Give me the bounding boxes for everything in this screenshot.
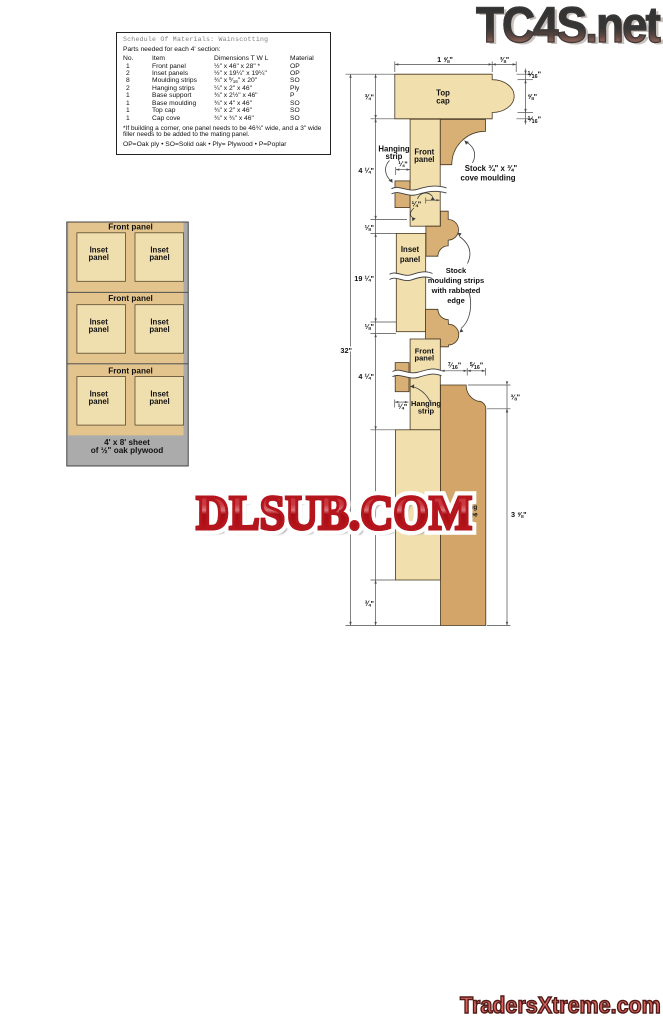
svg-text:1⁄16": 1⁄16"	[528, 70, 542, 81]
svg-text:panel: panel	[400, 255, 420, 264]
svg-text:moulding strips: moulding strips	[428, 276, 484, 285]
svg-text:Front panel: Front panel	[108, 223, 153, 232]
svg-text:panel: panel	[89, 325, 109, 334]
svg-text:strip: strip	[418, 406, 435, 415]
svg-text:¼": ¼"	[398, 402, 408, 411]
svg-text:strip: strip	[386, 152, 403, 161]
svg-text:32": 32"	[340, 346, 352, 355]
svg-text:1⁄16": 1⁄16"	[528, 115, 542, 126]
svg-text:panel: panel	[149, 325, 169, 334]
svg-text:⅜": ⅜"	[511, 393, 521, 402]
svg-text:panel: panel	[149, 397, 169, 406]
svg-text:Inset: Inset	[401, 245, 420, 254]
svg-text:¼": ¼"	[412, 200, 422, 209]
svg-text:Front panel: Front panel	[108, 366, 153, 375]
svg-text:panel: panel	[89, 253, 109, 262]
svg-text:cap: cap	[436, 96, 450, 105]
svg-text:19 ¼": 19 ¼"	[354, 274, 374, 283]
svg-text:panel: panel	[414, 155, 434, 164]
svg-text:7⁄16": 7⁄16"	[448, 360, 462, 371]
svg-text:3 ⅝": 3 ⅝"	[511, 510, 527, 519]
svg-text:panel: panel	[149, 253, 169, 262]
svg-text:of ½" oak plywood: of ½" oak plywood	[91, 446, 164, 455]
svg-text:cove moulding: cove moulding	[460, 173, 515, 182]
svg-text:⅝": ⅝"	[528, 92, 538, 101]
svg-text:¾": ¾"	[364, 599, 374, 608]
svg-text:¾": ¾"	[364, 93, 374, 102]
svg-text:with rabbeted: with rabbeted	[431, 286, 481, 295]
svg-text:4 ¼": 4 ¼"	[358, 166, 374, 175]
svg-text:edge: edge	[447, 296, 465, 305]
svg-text:4 ¼": 4 ¼"	[358, 372, 374, 381]
svg-text:panel: panel	[415, 354, 435, 363]
svg-text:panel: panel	[89, 397, 109, 406]
svg-text:Stock ¾" x ¾": Stock ¾" x ¾"	[465, 164, 518, 173]
svg-text:1 ⅝": 1 ⅝"	[437, 55, 453, 64]
svg-text:⅛": ⅛"	[364, 223, 374, 232]
svg-text:⅛": ⅛"	[364, 322, 374, 331]
svg-text:Front panel: Front panel	[108, 294, 153, 303]
svg-text:5⁄16": 5⁄16"	[470, 360, 484, 371]
svg-text:Stock: Stock	[446, 266, 467, 275]
svg-text:⅜": ⅜"	[500, 55, 510, 64]
